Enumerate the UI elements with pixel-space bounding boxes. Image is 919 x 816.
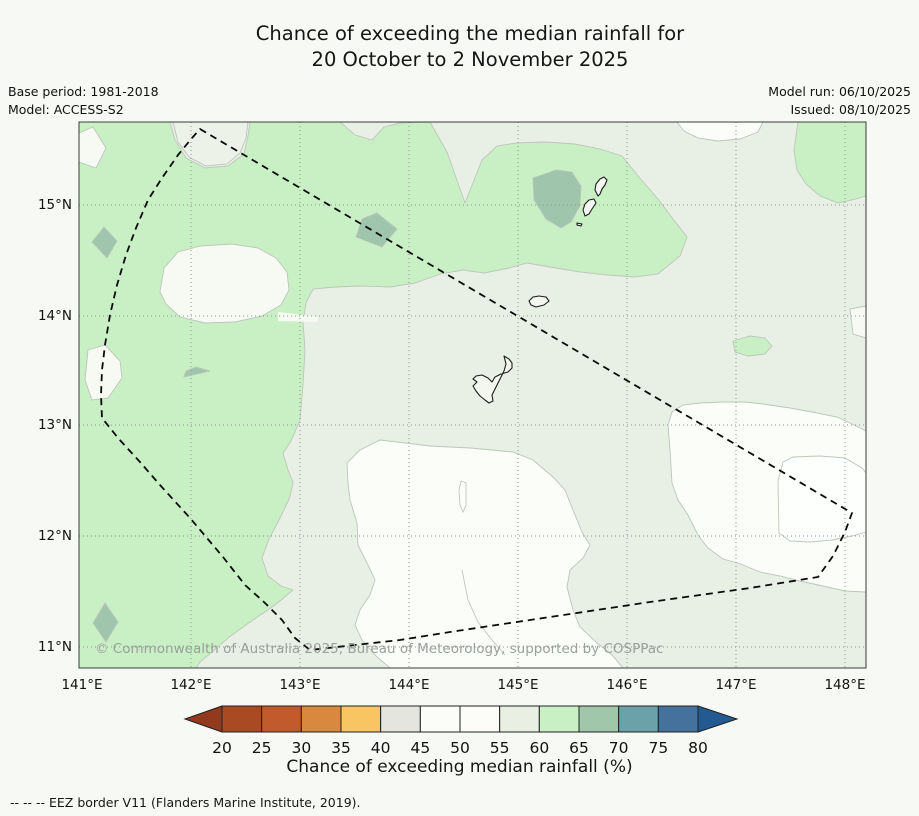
x-tick-146°E: 146°E (597, 676, 657, 694)
colorbar-tick-25: 25 (252, 739, 272, 757)
colorbar-segment-25-30 (262, 706, 302, 732)
map-region-pale-oval (160, 244, 289, 323)
colorbar-segments (222, 706, 698, 732)
y-tick-12°N: 12°N (0, 527, 72, 545)
colorbar-under-arrow (185, 706, 222, 732)
colorbar-segment-65-70 (579, 706, 619, 732)
forecast-figure: Chance of exceeding the median rainfall … (0, 0, 919, 816)
x-tick-141°E: 141°E (52, 676, 112, 694)
colorbar-segment-45-50 (420, 706, 460, 732)
x-tick-144°E: 144°E (379, 676, 439, 694)
y-tick-11°N: 11°N (0, 638, 72, 656)
island-aguijan (577, 223, 582, 226)
x-tick-143°E: 143°E (270, 676, 330, 694)
colorbar-tick-75: 75 (648, 739, 668, 757)
colorbar-tick-45: 45 (410, 739, 430, 757)
colorbar-tick-35: 35 (331, 739, 351, 757)
rainfall-probability-map: 20253035404550556065707580 (0, 0, 919, 816)
x-tick-148°E: 148°E (815, 676, 875, 694)
colorbar-tick-50: 50 (450, 739, 470, 757)
x-tick-145°E: 145°E (488, 676, 548, 694)
colorbar-segment-40-45 (381, 706, 421, 732)
y-tick-13°N: 13°N (0, 416, 72, 434)
colorbar-tick-65: 65 (569, 739, 589, 757)
colorbar-tick-40: 40 (371, 739, 391, 757)
eez-footnote: -- -- -- EEZ border V11 (Flanders Marine… (10, 795, 361, 810)
colorbar-segment-75-80 (658, 706, 698, 732)
colorbar-segment-50-55 (460, 706, 500, 732)
map-region-white-inner-east (778, 456, 866, 542)
colorbar-segment-30-35 (301, 706, 341, 732)
colorbar-tick-labels: 20253035404550556065707580 (212, 739, 708, 757)
y-tick-14°N: 14°N (0, 307, 72, 325)
copyright-note: © Commonwealth of Australia 2025, Bureau… (95, 641, 663, 657)
colorbar-caption: Chance of exceeding median rainfall (%) (0, 757, 919, 777)
colorbar-segment-60-65 (539, 706, 579, 732)
colorbar-tick-20: 20 (212, 739, 232, 757)
x-tick-142°E: 142°E (161, 676, 221, 694)
y-tick-15°N: 15°N (0, 196, 72, 214)
colorbar-tick-70: 70 (609, 739, 629, 757)
map-region-60-65-small (733, 336, 772, 356)
colorbar-segment-35-40 (341, 706, 381, 732)
colorbar-tick-60: 60 (529, 739, 549, 757)
colorbar-over-arrow (698, 706, 737, 732)
colorbar-tick-30: 30 (291, 739, 311, 757)
x-tick-147°E: 147°E (706, 676, 766, 694)
colorbar-segment-55-60 (500, 706, 540, 732)
colorbar: 20253035404550556065707580 (185, 706, 737, 757)
colorbar-segment-20-25 (222, 706, 262, 732)
colorbar-tick-80: 80 (688, 739, 708, 757)
colorbar-tick-55: 55 (490, 739, 510, 757)
colorbar-segment-70-75 (619, 706, 659, 732)
